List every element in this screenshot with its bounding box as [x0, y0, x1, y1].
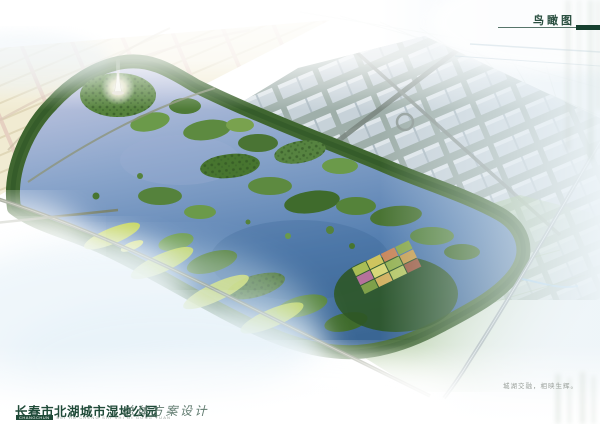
- pinyin-badge: CHANGCHUN: [16, 415, 53, 420]
- header-rule: [498, 27, 578, 28]
- presentation-board: 鸟瞰图 长春市北湖城市湿地公园 CHANGCHUN BEI HU CHENG S…: [0, 0, 600, 424]
- header-accent-bar: [576, 25, 600, 30]
- slogan-caption: 城湖交融，相映生辉。: [503, 380, 578, 390]
- scheme-subtitle: 总体方案设计: [122, 402, 209, 419]
- birdseye-view-label: 鸟瞰图: [533, 12, 575, 28]
- aerial-rendering-image: [0, 0, 600, 424]
